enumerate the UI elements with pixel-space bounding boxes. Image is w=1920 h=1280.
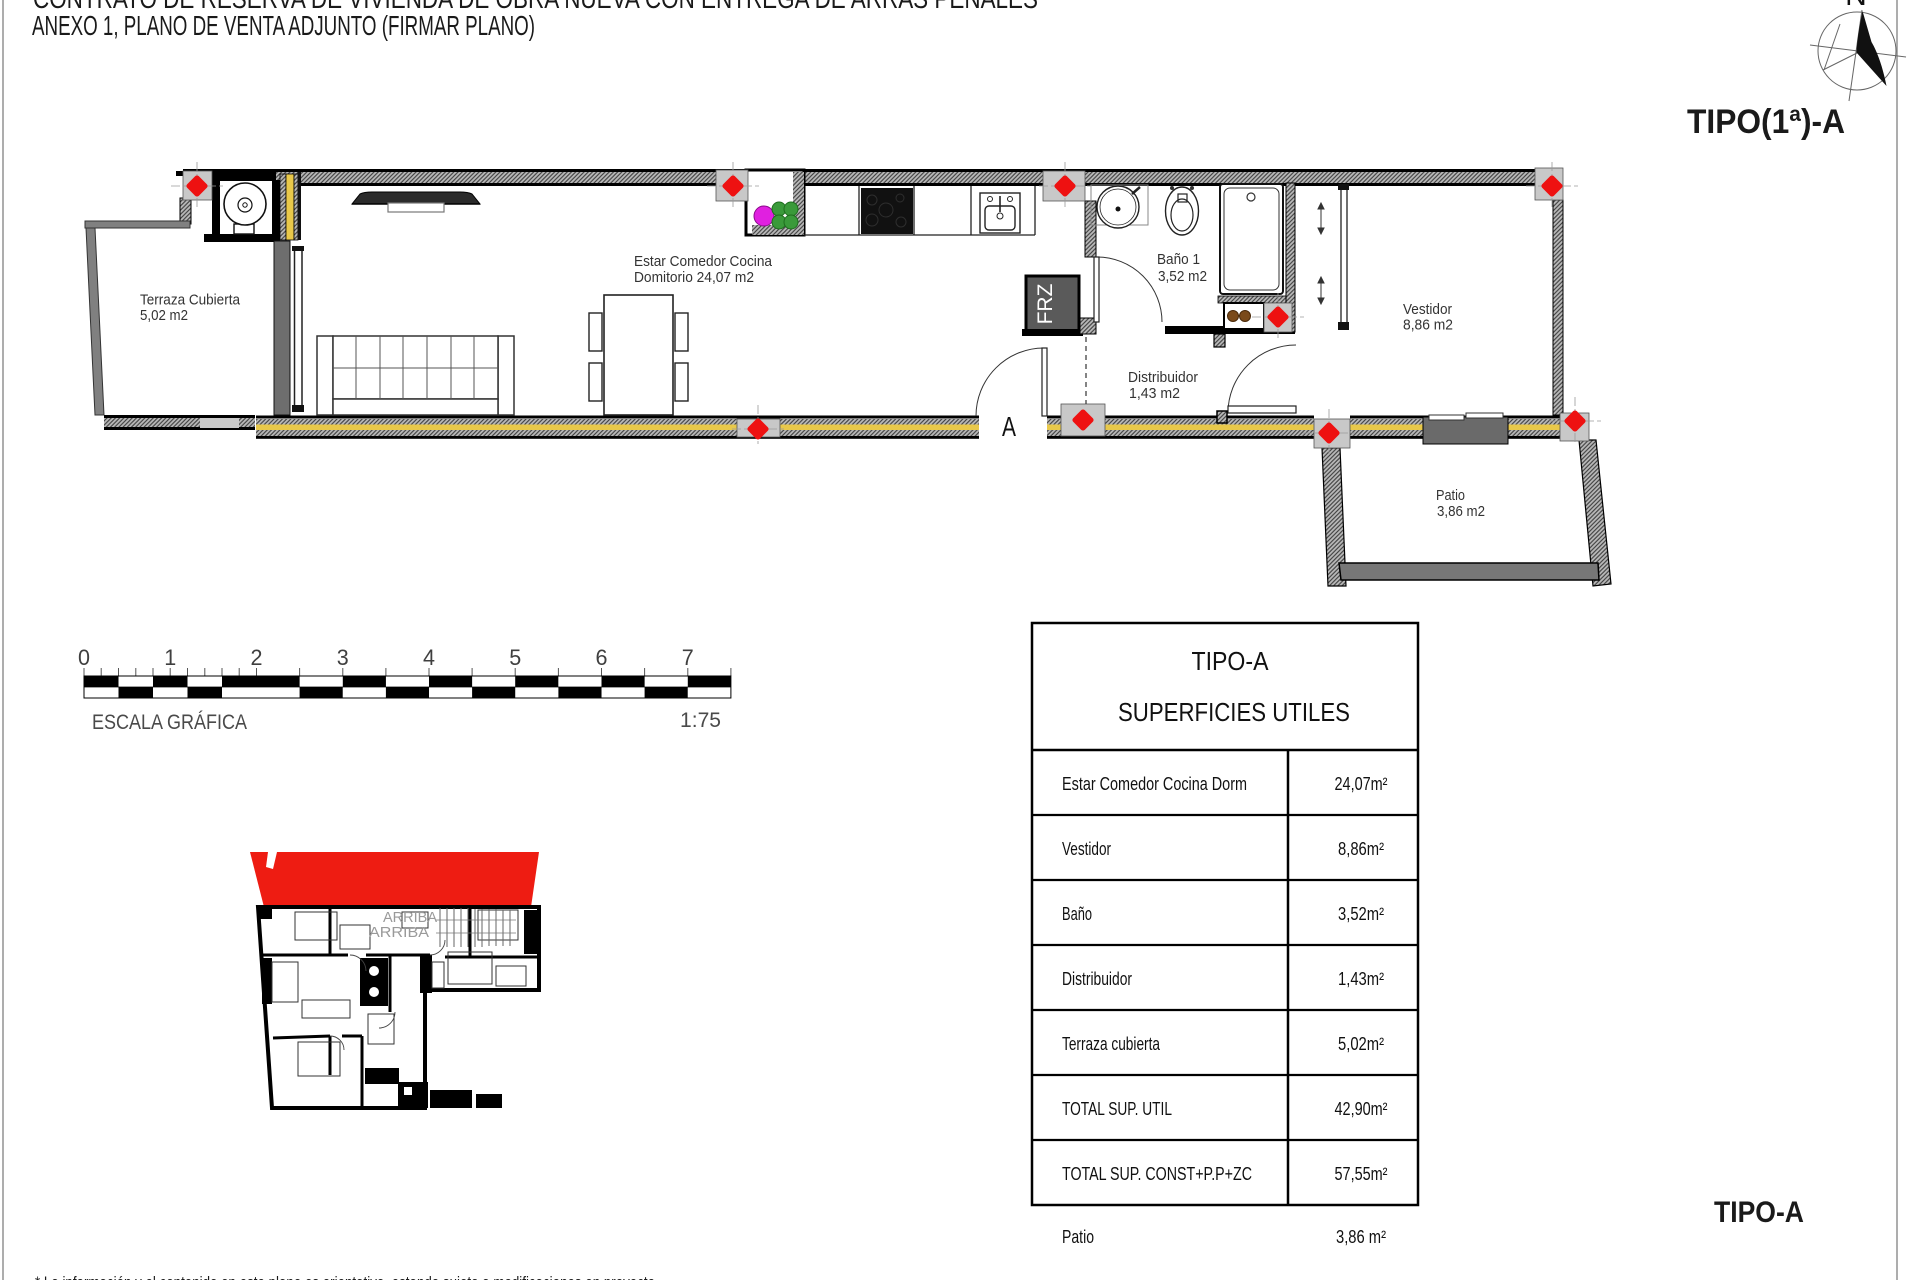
svg-text:Baño: Baño: [1062, 904, 1092, 924]
svg-text:4: 4: [423, 645, 435, 670]
svg-text:3: 3: [337, 645, 349, 670]
svg-text:3,52m²: 3,52m²: [1338, 904, 1384, 924]
svg-text:ESCALA GRÁFICA: ESCALA GRÁFICA: [92, 711, 247, 734]
svg-text:5: 5: [509, 645, 521, 670]
svg-text:8,86m²: 8,86m²: [1338, 839, 1384, 859]
svg-text:Patio: Patio: [1436, 487, 1465, 504]
svg-text:24,07m²: 24,07m²: [1335, 774, 1388, 794]
svg-text:1:75: 1:75: [680, 709, 721, 732]
svg-text:42,90m²: 42,90m²: [1335, 1099, 1388, 1119]
svg-text:Estar Comedor Cocina Dorm: Estar Comedor Cocina Dorm: [1062, 774, 1247, 794]
svg-text:0: 0: [78, 645, 90, 670]
svg-text:6: 6: [596, 645, 608, 670]
svg-text:TIPO(1ª)-A: TIPO(1ª)-A: [1687, 103, 1845, 141]
svg-text:3,86 m2: 3,86 m2: [1437, 503, 1485, 520]
svg-text:FRZ: FRZ: [1034, 283, 1057, 324]
svg-text:Domitorio 24,07 m2: Domitorio 24,07 m2: [634, 269, 754, 286]
svg-text:ARRIBA: ARRIBA: [369, 925, 429, 941]
svg-text:A: A: [1002, 411, 1016, 442]
svg-text:Vestidor: Vestidor: [1062, 839, 1111, 859]
svg-text:2: 2: [251, 645, 263, 670]
svg-text:TOTAL SUP. UTIL: TOTAL SUP. UTIL: [1062, 1099, 1172, 1119]
svg-text:Distribuidor: Distribuidor: [1128, 369, 1198, 386]
svg-text:Distribuidor: Distribuidor: [1062, 969, 1132, 989]
svg-text:1,43 m2: 1,43 m2: [1129, 385, 1180, 402]
svg-text:7: 7: [682, 645, 694, 670]
svg-text:Estar Comedor Cocina: Estar Comedor Cocina: [634, 253, 773, 270]
svg-text:SUPERFICIES UTILES: SUPERFICIES UTILES: [1118, 697, 1350, 727]
svg-text:* La información y el contenid: * La información y el contenido en este …: [35, 1273, 655, 1280]
svg-text:Terraza Cubierta: Terraza Cubierta: [140, 292, 241, 309]
svg-text:N: N: [1845, 0, 1867, 12]
svg-text:5,02m²: 5,02m²: [1338, 1034, 1384, 1054]
svg-text:TIPO-A: TIPO-A: [1192, 646, 1270, 676]
svg-text:1: 1: [164, 645, 176, 670]
svg-text:Vestidor: Vestidor: [1403, 301, 1452, 318]
svg-text:ANEXO 1, PLANO DE VENTA ADJUNT: ANEXO 1, PLANO DE VENTA ADJUNTO (FIRMAR …: [32, 10, 535, 41]
svg-text:TOTAL SUP. CONST+P.P+ZC: TOTAL SUP. CONST+P.P+ZC: [1062, 1164, 1252, 1184]
svg-text:1,43m²: 1,43m²: [1338, 969, 1384, 989]
svg-text:Terraza cubierta: Terraza cubierta: [1062, 1034, 1161, 1054]
svg-text:TIPO-A: TIPO-A: [1714, 1196, 1804, 1229]
svg-text:3,86 m²: 3,86 m²: [1336, 1227, 1386, 1247]
svg-text:8,86 m2: 8,86 m2: [1403, 317, 1453, 334]
svg-text:5,02 m2: 5,02 m2: [140, 307, 188, 324]
svg-text:Baño 1: Baño 1: [1157, 251, 1200, 268]
svg-text:57,55m²: 57,55m²: [1335, 1164, 1388, 1184]
svg-text:3,52 m2: 3,52 m2: [1158, 268, 1207, 285]
svg-text:ARRIBA: ARRIBA: [383, 910, 437, 926]
svg-text:Patio: Patio: [1062, 1227, 1094, 1247]
